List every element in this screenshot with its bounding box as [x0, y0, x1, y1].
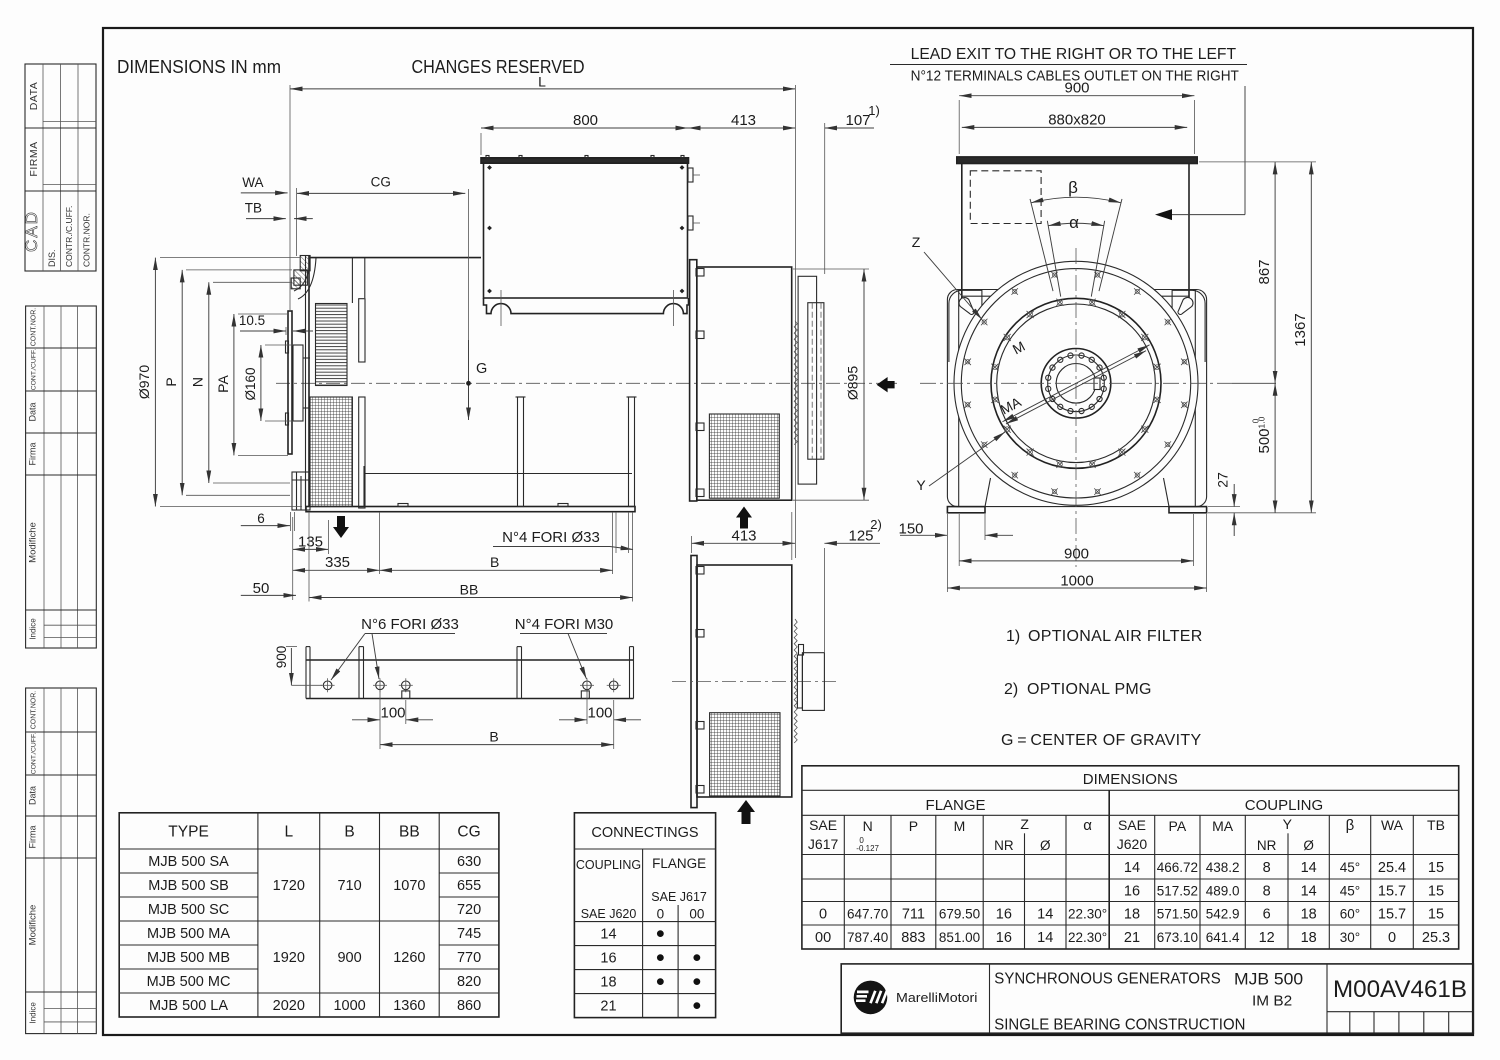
svg-text:100: 100: [587, 705, 612, 722]
svg-text:β: β: [1068, 178, 1078, 197]
svg-text:N°4 FORI Ø33: N°4 FORI Ø33: [502, 529, 600, 546]
svg-text:14: 14: [1037, 930, 1053, 946]
svg-text:16: 16: [996, 906, 1012, 922]
svg-text:0: 0: [657, 907, 665, 922]
svg-text:820: 820: [457, 974, 481, 990]
svg-text:CHANGES RESERVED: CHANGES RESERVED: [412, 57, 585, 77]
svg-text:335: 335: [325, 554, 350, 571]
svg-text:MJB 500 SC: MJB 500 SC: [148, 902, 229, 918]
svg-text:Firma: Firma: [28, 826, 38, 849]
svg-text:J620: J620: [1117, 836, 1148, 852]
svg-text:8: 8: [1263, 860, 1271, 876]
svg-text:571.50: 571.50: [1157, 906, 1198, 921]
svg-text:SINGLE BEARING CONSTRUCTION: SINGLE BEARING CONSTRUCTION: [994, 1017, 1245, 1034]
svg-text:Y: Y: [916, 477, 926, 493]
svg-text:CAD: CAD: [22, 210, 41, 252]
svg-text:135: 135: [298, 534, 323, 551]
svg-text:8: 8: [1263, 883, 1271, 899]
svg-text:N°6 FORI Ø33: N°6 FORI Ø33: [361, 616, 459, 633]
svg-text:800: 800: [573, 112, 598, 129]
svg-text:673.10: 673.10: [1157, 930, 1198, 945]
svg-text:B: B: [489, 729, 498, 745]
svg-text:P: P: [909, 818, 918, 834]
svg-text:6: 6: [1263, 906, 1271, 922]
svg-text:12: 12: [1259, 930, 1275, 946]
svg-text:CG: CG: [371, 175, 391, 190]
svg-text:15: 15: [1428, 883, 1444, 899]
svg-text:β: β: [1346, 817, 1355, 834]
svg-text:N°4 FORI M30: N°4 FORI M30: [515, 616, 614, 633]
svg-text:1360: 1360: [393, 998, 425, 1014]
svg-text:16: 16: [1124, 883, 1140, 899]
svg-text:860: 860: [457, 998, 481, 1014]
svg-text:SAE: SAE: [809, 817, 837, 833]
svg-text:711: 711: [902, 906, 925, 922]
svg-text:787.40: 787.40: [847, 930, 888, 945]
svg-text:Z: Z: [912, 234, 921, 250]
svg-text:2020: 2020: [273, 998, 305, 1014]
svg-text:L: L: [538, 74, 546, 90]
svg-text:MarelliMotori: MarelliMotori: [896, 990, 978, 1005]
svg-text:1367: 1367: [1292, 313, 1309, 346]
svg-text:MJB 500 MB: MJB 500 MB: [147, 950, 230, 966]
svg-text:15.7: 15.7: [1378, 906, 1406, 922]
svg-text:880x820: 880x820: [1048, 112, 1106, 129]
svg-text:14: 14: [1037, 906, 1053, 922]
svg-text:SAE J620: SAE J620: [581, 907, 637, 921]
svg-text:BB: BB: [460, 582, 479, 598]
svg-text:22.30°: 22.30°: [1068, 906, 1107, 921]
svg-text:WA: WA: [1381, 817, 1404, 833]
svg-text:150: 150: [898, 521, 923, 538]
svg-text:OPTIONAL PMG: OPTIONAL PMG: [1027, 681, 1152, 698]
svg-text:COUPLING: COUPLING: [1245, 797, 1323, 814]
svg-text:CONT./CUFF.: CONT./CUFF.: [31, 733, 38, 775]
svg-text:NR: NR: [1257, 838, 1277, 853]
svg-text:1720: 1720: [273, 878, 305, 894]
svg-text:489.0: 489.0: [1206, 883, 1240, 898]
svg-text:B: B: [344, 823, 354, 840]
svg-text:CONT.NOR.: CONT.NOR.: [31, 691, 38, 730]
svg-text:Ø: Ø: [1303, 838, 1314, 853]
svg-text:NR: NR: [994, 838, 1014, 853]
svg-text:14: 14: [1301, 883, 1317, 899]
svg-text:Modifiche: Modifiche: [28, 905, 39, 946]
svg-text:22.30°: 22.30°: [1068, 930, 1107, 945]
svg-text:M: M: [954, 818, 966, 834]
svg-text:DIMENSIONS IN mm: DIMENSIONS IN mm: [117, 57, 281, 77]
svg-text:647.70: 647.70: [847, 906, 888, 921]
svg-text:Ø895: Ø895: [845, 366, 861, 400]
svg-text:15.7: 15.7: [1378, 883, 1406, 899]
svg-text:15: 15: [1428, 860, 1444, 876]
svg-text:CONTR.NOR.: CONTR.NOR.: [82, 213, 92, 267]
svg-text:27: 27: [1215, 472, 1231, 488]
svg-text:107: 107: [845, 112, 870, 129]
svg-text:PA: PA: [1169, 818, 1187, 834]
svg-text:1920: 1920: [273, 950, 305, 966]
svg-text:10.5: 10.5: [239, 313, 265, 328]
svg-text:B: B: [490, 554, 499, 570]
svg-text:Y: Y: [1283, 816, 1293, 832]
svg-text:745: 745: [457, 926, 481, 942]
svg-text:PA: PA: [215, 375, 231, 393]
svg-text:0: 0: [819, 906, 827, 922]
svg-text:900: 900: [274, 646, 289, 669]
svg-text:16: 16: [600, 951, 616, 967]
svg-text:18: 18: [1124, 906, 1140, 922]
svg-text:CONT.NOR.: CONT.NOR.: [31, 308, 38, 347]
svg-text:883: 883: [901, 930, 925, 946]
svg-text:6: 6: [257, 511, 265, 526]
svg-text:TB: TB: [245, 201, 262, 216]
svg-text:18: 18: [1301, 930, 1317, 946]
svg-text:G = CENTER OF GRAVITY: G = CENTER OF GRAVITY: [1001, 732, 1201, 749]
svg-text:N: N: [863, 818, 873, 834]
svg-text:438.2: 438.2: [1206, 860, 1240, 875]
svg-text:α: α: [1083, 817, 1092, 834]
svg-text:CONTR./C.UFF.: CONTR./C.UFF.: [64, 206, 74, 267]
svg-text:100: 100: [380, 705, 405, 722]
svg-text:Modifiche: Modifiche: [28, 522, 39, 563]
svg-text:FLANGE: FLANGE: [926, 797, 986, 814]
svg-text:MJB 500 SB: MJB 500 SB: [148, 878, 229, 894]
svg-text:TB: TB: [1427, 817, 1445, 833]
svg-text:630: 630: [457, 854, 481, 870]
svg-text:Z: Z: [1020, 816, 1029, 832]
svg-text:517.52: 517.52: [1157, 883, 1198, 898]
svg-text:DATA: DATA: [28, 82, 40, 110]
svg-text:CG: CG: [457, 823, 480, 840]
svg-text:655: 655: [457, 878, 481, 894]
svg-text:542.9: 542.9: [1206, 906, 1240, 921]
svg-text:851.00: 851.00: [939, 930, 980, 945]
svg-text:Firma: Firma: [28, 443, 38, 466]
svg-text:900: 900: [1064, 546, 1089, 563]
svg-text:770: 770: [457, 950, 481, 966]
svg-text:IM B2: IM B2: [1252, 994, 1292, 1010]
svg-text:MJB 500 LA: MJB 500 LA: [149, 998, 228, 1014]
svg-text:OPTIONAL AIR FILTER: OPTIONAL AIR FILTER: [1028, 628, 1203, 645]
svg-text:00: 00: [815, 930, 831, 946]
svg-text:60°: 60°: [1340, 906, 1360, 921]
svg-text:DIMENSIONS: DIMENSIONS: [1083, 771, 1178, 788]
svg-text:25.4: 25.4: [1378, 860, 1406, 876]
svg-text:M00AV461B: M00AV461B: [1333, 976, 1467, 1003]
svg-text:CONNECTINGS: CONNECTINGS: [591, 825, 698, 841]
svg-text:30°: 30°: [1340, 930, 1360, 945]
svg-text:Data: Data: [28, 402, 38, 421]
svg-text:14: 14: [600, 927, 616, 943]
svg-text:45°: 45°: [1340, 883, 1360, 898]
svg-text:MJB 500: MJB 500: [1234, 971, 1303, 989]
svg-text:MA: MA: [1212, 818, 1234, 834]
svg-text:641.4: 641.4: [1206, 930, 1240, 945]
svg-text:14: 14: [1301, 860, 1317, 876]
svg-text:P: P: [163, 377, 179, 386]
svg-text:Ø160: Ø160: [243, 367, 258, 400]
svg-text:MJB 500 MA: MJB 500 MA: [147, 926, 230, 942]
svg-text:413: 413: [731, 112, 756, 129]
svg-text:466.72: 466.72: [1157, 860, 1198, 875]
svg-text:1260: 1260: [393, 950, 425, 966]
svg-text:FLANGE: FLANGE: [652, 856, 706, 871]
svg-text:BB: BB: [399, 823, 420, 840]
svg-text:867: 867: [1256, 259, 1273, 284]
svg-text:DIS.: DIS.: [47, 249, 57, 267]
svg-text:MJB 500 SA: MJB 500 SA: [148, 854, 229, 870]
svg-text:Indice: Indice: [29, 618, 38, 640]
svg-text:0: 0: [1388, 930, 1396, 946]
svg-text:L: L: [284, 823, 293, 840]
svg-text:1): 1): [1006, 628, 1020, 645]
svg-text:Data: Data: [28, 786, 38, 805]
svg-text:TYPE: TYPE: [168, 823, 208, 840]
svg-text:710: 710: [337, 878, 361, 894]
svg-text:COUPLING: COUPLING: [576, 858, 641, 872]
svg-text:900: 900: [1064, 80, 1089, 97]
svg-text:14: 14: [1124, 860, 1140, 876]
svg-text:J617: J617: [808, 836, 839, 852]
svg-text:15: 15: [1428, 906, 1444, 922]
svg-text:LEAD EXIT TO THE RIGHT OR TO T: LEAD EXIT TO THE RIGHT OR TO THE LEFT: [911, 46, 1237, 63]
svg-text:N: N: [190, 377, 206, 387]
svg-text:679.50: 679.50: [939, 906, 980, 921]
svg-text:18: 18: [600, 975, 616, 991]
svg-text:SYNCHRONOUS GENERATORS: SYNCHRONOUS GENERATORS: [994, 971, 1221, 988]
svg-text:1000: 1000: [1060, 573, 1093, 590]
svg-text:Ø970: Ø970: [136, 365, 152, 399]
svg-text:1000: 1000: [333, 998, 365, 1014]
svg-text:18: 18: [1301, 906, 1317, 922]
svg-text:900: 900: [337, 950, 361, 966]
svg-text:Indice: Indice: [29, 1002, 38, 1024]
svg-text:SAE J617: SAE J617: [651, 890, 707, 904]
svg-text:SAE: SAE: [1118, 817, 1146, 833]
svg-text:25.3: 25.3: [1422, 930, 1450, 946]
svg-text:50: 50: [253, 580, 270, 597]
svg-text:Ø: Ø: [1040, 838, 1051, 853]
svg-text:MJB 500 MC: MJB 500 MC: [147, 974, 231, 990]
svg-text:00: 00: [689, 907, 704, 922]
svg-text:-1.0: -1.0: [1257, 416, 1267, 431]
svg-text:α: α: [1069, 213, 1079, 232]
svg-text:1070: 1070: [393, 878, 425, 894]
svg-text:1): 1): [868, 103, 880, 118]
svg-text:2): 2): [1004, 681, 1018, 698]
svg-text:G: G: [476, 361, 487, 377]
svg-text:WA: WA: [242, 175, 263, 190]
svg-text:413: 413: [731, 528, 756, 545]
svg-text:CONT./CUFF.: CONT./CUFF.: [31, 349, 38, 391]
svg-text:21: 21: [600, 999, 616, 1015]
svg-text:2): 2): [870, 517, 882, 532]
svg-text:16: 16: [996, 930, 1012, 946]
svg-text:21: 21: [1124, 930, 1140, 946]
svg-text:FIRMA: FIRMA: [28, 141, 40, 176]
svg-text:-0.127: -0.127: [856, 844, 879, 853]
svg-text:720: 720: [457, 902, 481, 918]
svg-text:45°: 45°: [1340, 860, 1360, 875]
